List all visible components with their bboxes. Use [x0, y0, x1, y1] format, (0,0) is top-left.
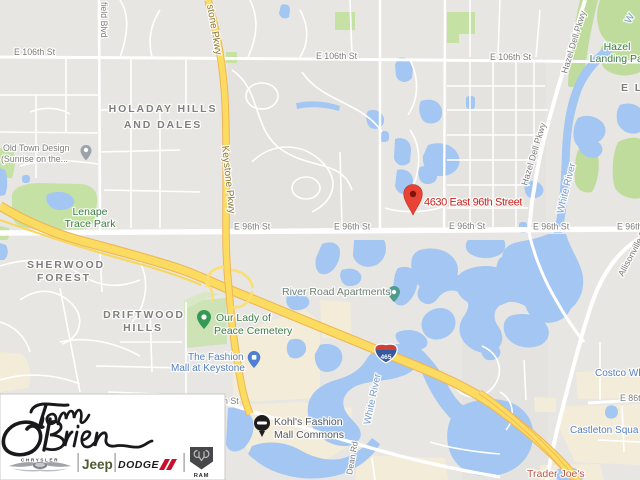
svg-text:E 96th St: E 96th St	[617, 222, 640, 232]
svg-text:HOLADAY HILLS: HOLADAY HILLS	[109, 103, 218, 115]
svg-text:AND DALES: AND DALES	[124, 119, 202, 131]
svg-text:E 106th St: E 106th St	[490, 52, 532, 62]
svg-text:Jeep: Jeep	[82, 457, 113, 472]
svg-text:E 106th St: E 106th St	[316, 51, 358, 61]
svg-text:Peace Cemetery: Peace Cemetery	[214, 325, 293, 337]
svg-text:Mall Commons: Mall Commons	[274, 429, 344, 441]
svg-text:E 96th St: E 96th St	[449, 221, 486, 231]
svg-text:Old Town Design: Old Town Design	[3, 143, 69, 153]
svg-text:(Sunrise on the...: (Sunrise on the...	[1, 154, 68, 164]
svg-text:Kohl's Fashion: Kohl's Fashion	[274, 416, 343, 428]
svg-text:E 96th St: E 96th St	[234, 222, 271, 232]
svg-text:RAM: RAM	[194, 473, 210, 479]
svg-text:E 96th St: E 96th St	[533, 222, 570, 232]
svg-text:FOREST: FOREST	[37, 272, 91, 284]
svg-text:465: 465	[380, 354, 391, 361]
svg-text:SHERWOOD: SHERWOOD	[27, 259, 105, 271]
svg-text:4630 East 96th Street: 4630 East 96th Street	[424, 197, 522, 209]
svg-text:Our Lady of: Our Lady of	[216, 312, 271, 324]
svg-text:Landing Par: Landing Par	[590, 53, 640, 65]
svg-text:DODGE: DODGE	[118, 459, 160, 471]
svg-text:Castleton Squa: Castleton Squa	[570, 425, 639, 436]
svg-text:Lenape: Lenape	[72, 206, 107, 218]
svg-text:E L: E L	[621, 82, 640, 94]
svg-text:Mall at Keystone: Mall at Keystone	[171, 363, 245, 374]
svg-text:E 96th St: E 96th St	[334, 222, 371, 232]
svg-text:Hazel: Hazel	[604, 41, 631, 53]
svg-text:HILLS: HILLS	[123, 322, 163, 334]
svg-text:Costco Wh: Costco Wh	[595, 368, 640, 379]
svg-text:Trace Park: Trace Park	[65, 218, 117, 230]
svg-text:Trader Joe's: Trader Joe's	[527, 468, 585, 480]
svg-text:field Blvd: field Blvd	[99, 2, 109, 38]
svg-text:River Road Apartments: River Road Apartments	[282, 286, 391, 298]
svg-text:DRIFTWOOD: DRIFTWOOD	[103, 309, 185, 321]
svg-text:The Fashion: The Fashion	[188, 352, 244, 363]
svg-text:E 106th St: E 106th St	[14, 47, 56, 57]
svg-text:E 86th: E 86th	[620, 393, 640, 403]
